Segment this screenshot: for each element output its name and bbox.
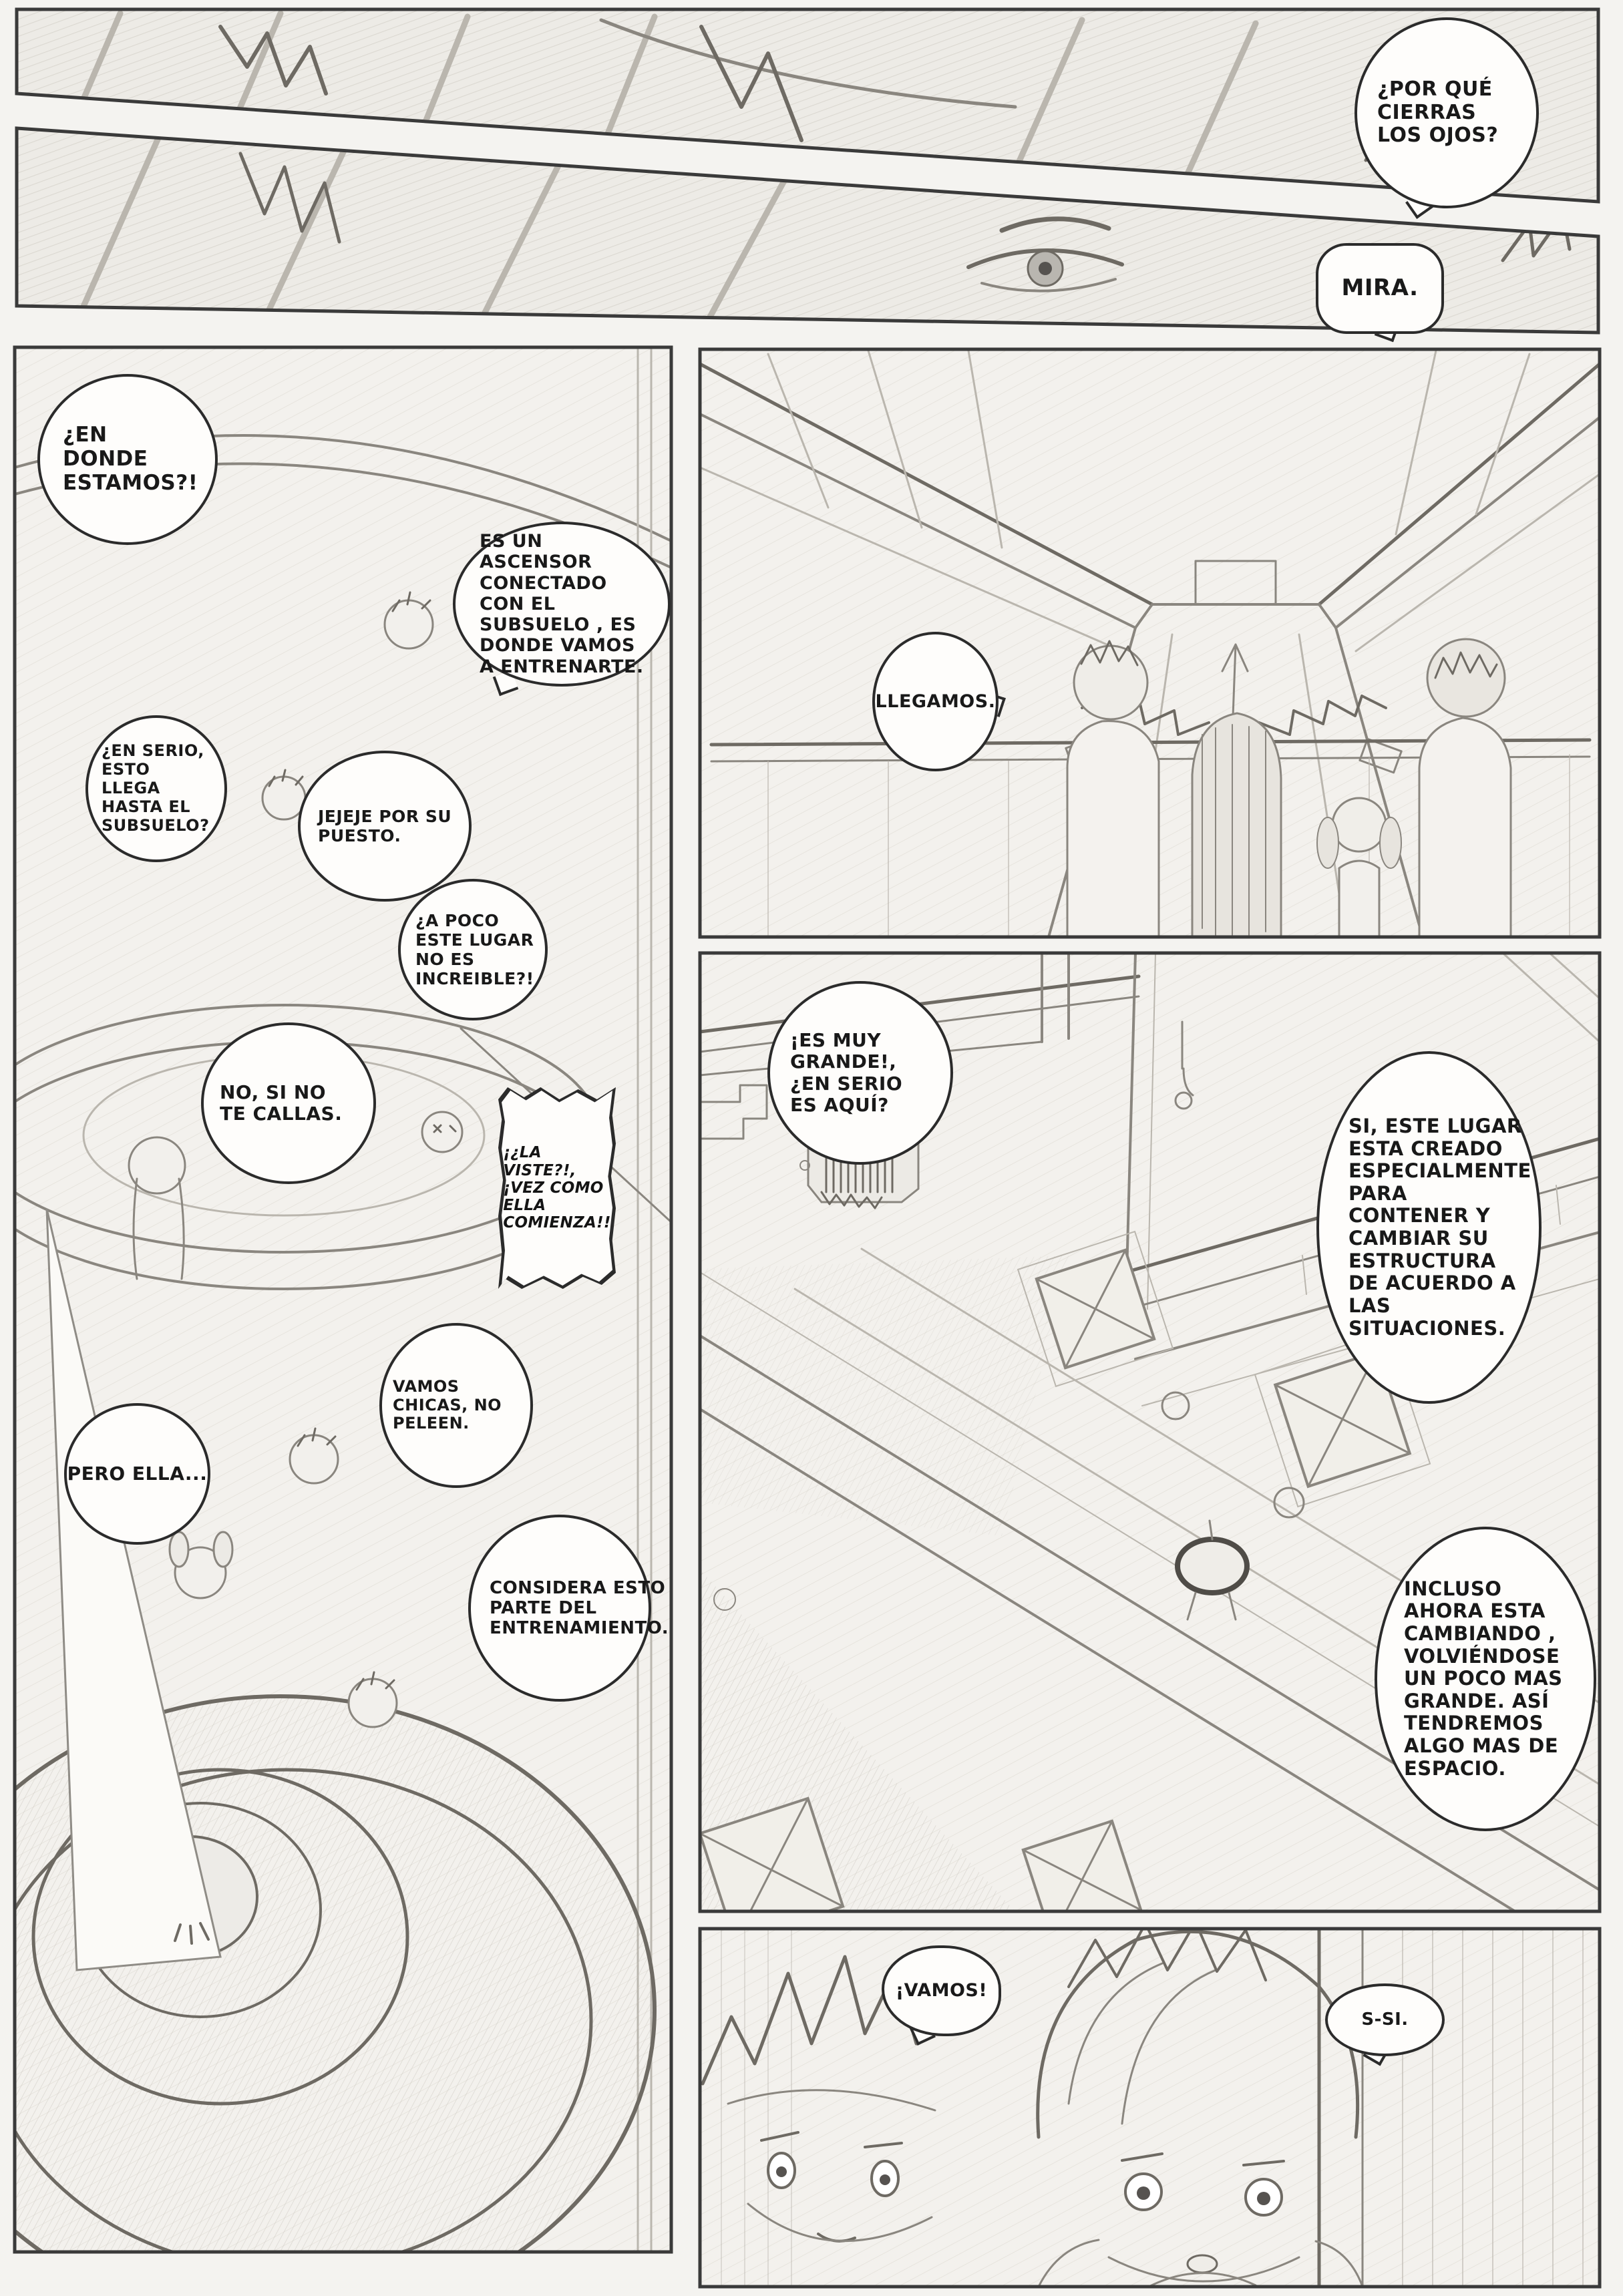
speech-bubble-s-si: S-SI. bbox=[1325, 1983, 1445, 2056]
bubble-text: CONSIDERA ESTO PARTE DEL ENTRENAMIENTO. bbox=[490, 1578, 669, 1638]
bubble-text: INCLUSO AHORA ESTA CAMBIANDO , VOLVIÉNDO… bbox=[1404, 1578, 1567, 1780]
speech-bubble-en-serio: ¿EN SERIO, ESTO LLEGA HASTA EL SUBSUELO? bbox=[85, 715, 227, 862]
bubble-text: S-SI. bbox=[1361, 2010, 1408, 2030]
panel-two-characters bbox=[700, 1922, 1600, 2287]
bubble-text: ¡ES MUY GRANDE!, ¿EN SERIO ES AQUÍ? bbox=[790, 1030, 930, 1117]
bubble-text: SI, ESTE LUGAR ESTA CREADO ESPECIALMENTE… bbox=[1348, 1115, 1531, 1340]
speech-bubble-pero-ella: PERO ELLA... bbox=[64, 1403, 210, 1545]
bubble-text: ¿POR QUÉ CIERRAS LOS OJOS? bbox=[1377, 78, 1516, 148]
bubble-text: MIRA. bbox=[1341, 275, 1418, 301]
bubble-text: ¡¿LA VISTE?!, ¡VEZ COMO ELLA COMIENZA!! bbox=[495, 1137, 618, 1238]
speech-bubble-jejeje: JEJEJE POR SU PUESTO. bbox=[298, 751, 472, 902]
shout-bubble-inner: ¡¿LA VISTE?!, ¡VEZ COMO ELLA COMIENZA!! bbox=[502, 1091, 612, 1286]
speech-bubble-incluso: INCLUSO AHORA ESTA CAMBIANDO , VOLVIÉNDO… bbox=[1375, 1527, 1596, 1831]
speech-bubble-si-este: SI, ESTE LUGAR ESTA CREADO ESPECIALMENTE… bbox=[1316, 1051, 1542, 1404]
speech-bubble-mira: MIRA. bbox=[1316, 243, 1444, 334]
speech-bubble-llegamos: LLEGAMOS. bbox=[872, 632, 999, 771]
bubble-text: JEJEJE POR SU PUESTO. bbox=[318, 807, 460, 845]
speech-bubble-considera: CONSIDERA ESTO PARTE DEL ENTRENAMIENTO. bbox=[468, 1515, 651, 1702]
speech-bubble-vamos: ¡VAMOS! bbox=[882, 1945, 1001, 2036]
speech-bubble-por-que: ¿POR QUÉ CIERRAS LOS OJOS? bbox=[1355, 17, 1539, 208]
bubble-text: ¿EN DONDE ESTAMOS?! bbox=[63, 423, 198, 496]
bubble-text: ¿EN SERIO, ESTO LLEGA HASTA EL SUBSUELO? bbox=[102, 742, 211, 835]
panel-corridor-arrival bbox=[700, 349, 1600, 937]
bubble-text: ES UN ASCENSOR CONECTADO CON EL SUBSUELO… bbox=[480, 531, 644, 677]
speech-bubble-a-poco: ¿A POCO ESTE LUGAR NO ES INCREIBLE?! bbox=[398, 879, 548, 1020]
bubble-text: ¡VAMOS! bbox=[896, 1980, 987, 2001]
bubble-text: LLEGAMOS. bbox=[876, 691, 996, 712]
speech-bubble-es-muy-grande: ¡ES MUY GRANDE!, ¿EN SERIO ES AQUÍ? bbox=[767, 981, 953, 1165]
bubble-text: ¿A POCO ESTE LUGAR NO ES INCREIBLE?! bbox=[415, 911, 534, 988]
speech-bubble-ascensor: ES UN ASCENSOR CONECTADO CON EL SUBSUELO… bbox=[453, 522, 671, 687]
bubble-text: PERO ELLA... bbox=[67, 1463, 208, 1485]
bubble-text: NO, SI NO TE CALLAS. bbox=[220, 1082, 357, 1125]
speech-bubble-no-si: NO, SI NO TE CALLAS. bbox=[201, 1022, 376, 1184]
speech-bubble-en-donde: ¿EN DONDE ESTAMOS?! bbox=[37, 374, 218, 545]
shout-bubble-la-viste: ¡¿LA VISTE?!, ¡VEZ COMO ELLA COMIENZA!! bbox=[498, 1087, 616, 1289]
manga-page: ¿POR QUÉ CIERRAS LOS OJOS? MIRA. ¿EN DON… bbox=[0, 0, 1623, 2296]
bubble-text: VAMOS CHICAS, NO PELEEN. bbox=[393, 1378, 520, 1433]
speech-bubble-vamos-chicas: VAMOS CHICAS, NO PELEEN. bbox=[379, 1323, 533, 1488]
